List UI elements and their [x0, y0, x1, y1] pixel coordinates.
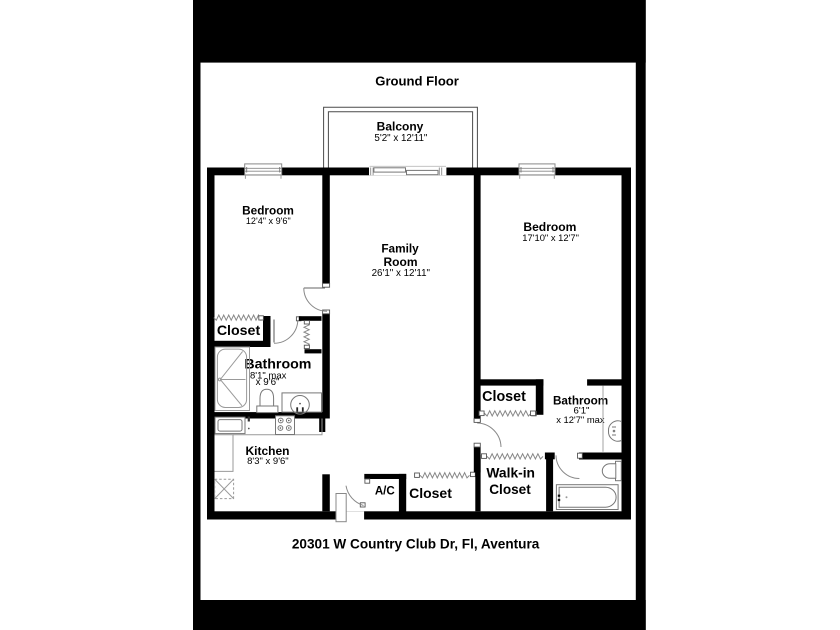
svg-text:5'2" x 12'11": 5'2" x 12'11" [374, 133, 428, 144]
svg-text:Closet: Closet [482, 389, 526, 405]
svg-text:Family: Family [381, 241, 419, 255]
svg-text:20301 W Country Club Dr, Fl, A: 20301 W Country Club Dr, Fl, Aventura [292, 537, 540, 552]
svg-text:Walk-in: Walk-in [486, 466, 535, 481]
svg-text:Ground Floor: Ground Floor [375, 74, 459, 89]
svg-text:17'10" x 12'7": 17'10" x 12'7" [522, 232, 579, 243]
svg-text:Closet: Closet [409, 485, 452, 501]
svg-text:A/C: A/C [375, 484, 396, 497]
svg-text:Balcony: Balcony [377, 120, 424, 134]
svg-text:x 12'7" max: x 12'7" max [556, 414, 605, 425]
svg-text:x 9'6": x 9'6" [256, 377, 280, 388]
svg-text:12'4" x 9'6": 12'4" x 9'6" [246, 216, 291, 226]
svg-text:Closet: Closet [217, 323, 261, 339]
svg-text:8'3" x 9'6": 8'3" x 9'6" [247, 456, 289, 467]
svg-text:26'1" x 12'11": 26'1" x 12'11" [372, 268, 431, 279]
svg-text:Closet: Closet [489, 482, 531, 497]
